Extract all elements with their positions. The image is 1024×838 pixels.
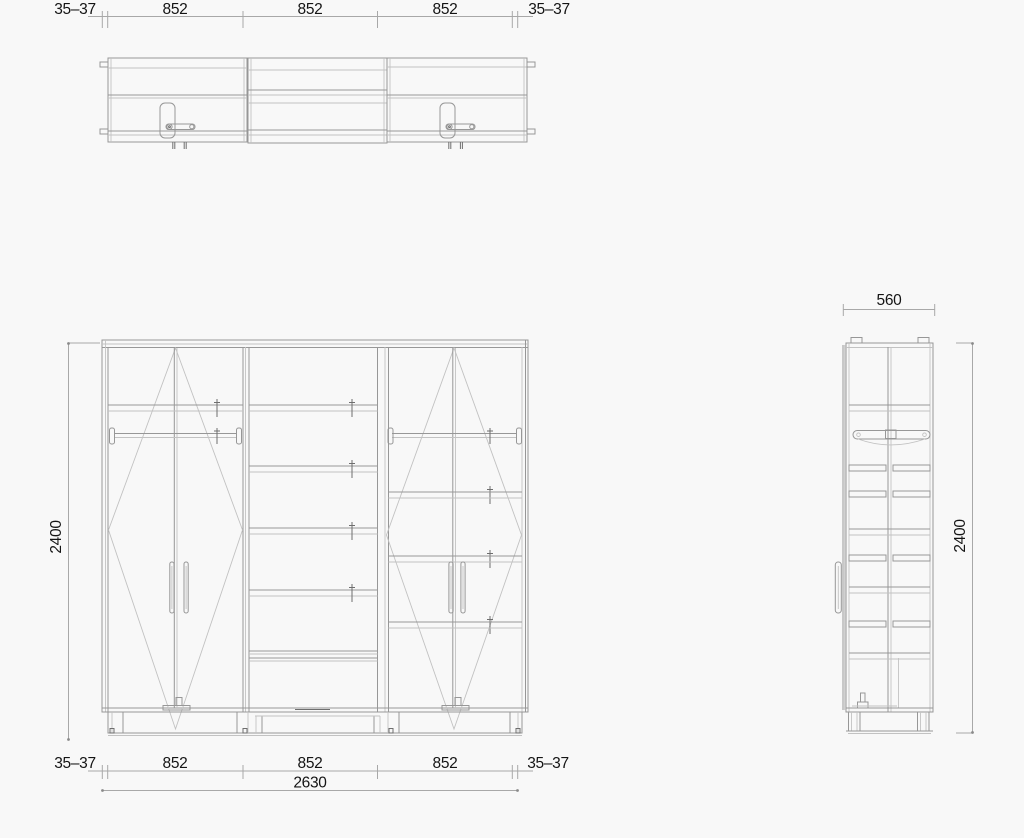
dim-top-gap-left: 35–37 — [54, 1, 96, 18]
dim-bottom-bay-2: 852 — [298, 755, 323, 772]
shelf-pin — [487, 428, 493, 634]
dim-top-bay-3: 852 — [433, 1, 458, 18]
dim-bottom-bay-3: 852 — [433, 755, 458, 772]
dim-side-height: 2400 — [952, 519, 969, 553]
shelf-pin — [214, 428, 220, 444]
dim-bottom-gap-left: 35–37 — [54, 755, 96, 772]
wardrobe-drawing: 35–37 852 852 852 35–37 35–37 852 852 85… — [0, 0, 1024, 838]
technical-drawing-canvas: 35–37 852 852 852 35–37 35–37 852 852 85… — [0, 0, 1024, 838]
shelf-pin — [214, 399, 220, 417]
door-handles-right — [449, 562, 465, 613]
dim-front-height: 2400 — [48, 520, 65, 554]
wall-tab — [527, 129, 535, 134]
dim-bottom-bay-1: 852 — [163, 755, 188, 772]
door-handles-left — [170, 562, 188, 613]
rod-bracket — [110, 428, 115, 444]
dim-overall-width: 2630 — [293, 775, 327, 792]
door-handle-side — [835, 562, 841, 613]
wall-tab — [851, 338, 862, 344]
dim-top-bay-2: 852 — [298, 1, 323, 18]
rod-bracket — [237, 428, 242, 444]
dim-bottom-gap-right: 35–37 — [527, 755, 569, 772]
wall-tab — [527, 62, 535, 67]
side-view — [835, 338, 933, 734]
lock-handle-plan-left — [160, 103, 195, 138]
dim-top-gap-right: 35–37 — [528, 1, 570, 18]
wall-tab — [100, 62, 108, 67]
lock-handle-plan-right — [440, 103, 475, 138]
wall-tab — [100, 129, 108, 134]
wall-tab — [918, 338, 929, 344]
rod-bracket — [517, 428, 522, 444]
hanging-rail-side — [853, 430, 930, 445]
shelf-pin — [349, 399, 355, 602]
dim-top-bay-1: 852 — [163, 1, 188, 18]
plinth-side — [846, 712, 933, 734]
dim-side-width: 560 — [877, 292, 903, 309]
middle-shelves — [249, 399, 378, 710]
floor-lock-side — [852, 693, 897, 708]
door-swing-mark-right — [387, 348, 522, 729]
front-view — [102, 340, 528, 736]
plan-view — [100, 58, 535, 149]
dimension-annotations: 35–37 852 852 852 35–37 35–37 852 852 85… — [48, 1, 974, 792]
plinth — [108, 712, 522, 736]
